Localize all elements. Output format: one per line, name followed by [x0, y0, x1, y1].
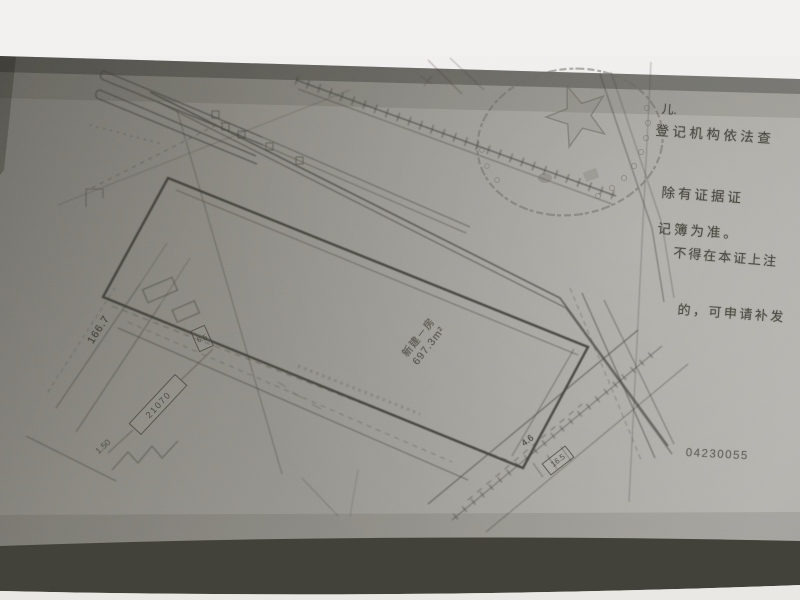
gate-dimension: 6.5 [195, 332, 208, 344]
certificate-note-fragment: 儿. [661, 103, 677, 116]
site-plan-photo [0, 0, 800, 600]
page-edge-shadow [0, 537, 800, 600]
photographed-document: 儿. 登记机构依法查 除有证据证 记簿为准。 不得在本证上注 的，可申请补发 0… [0, 0, 800, 600]
